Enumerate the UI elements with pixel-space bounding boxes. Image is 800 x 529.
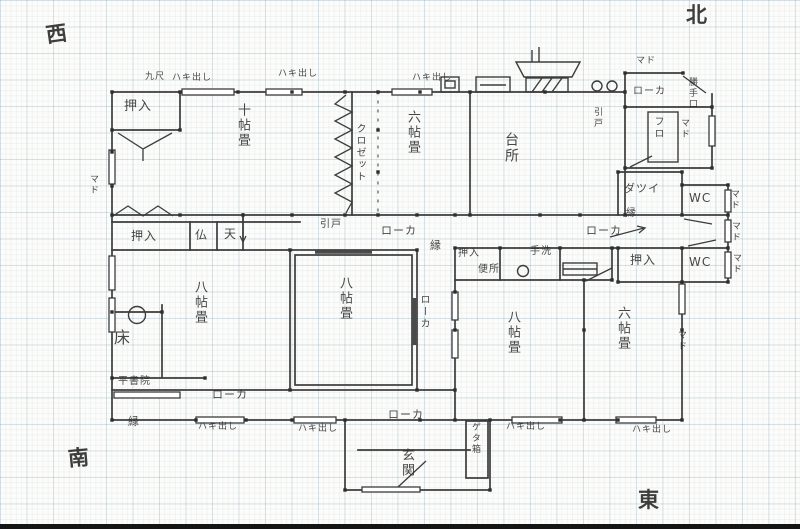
label-hakidashi-s2: ハキ出し <box>298 425 338 434</box>
label-mado-west: マド <box>88 174 97 196</box>
label-hakidashi-s4: ハキ出し <box>632 426 672 435</box>
room-label-eight-mat-south: 八帖畳 <box>506 310 519 355</box>
room-label-closet-strip: クロゼット <box>354 123 364 183</box>
label-mado-north: マド <box>636 57 656 66</box>
room-label-changing: ダツイ <box>624 183 660 194</box>
room-label-wc-upper: WC <box>689 192 711 204</box>
compass-west: 西 <box>45 23 70 47</box>
label-hakidashi-s3: ハキ出し <box>506 423 546 432</box>
label-shoin: 平書院 <box>118 377 151 387</box>
label-mado-se: マド <box>676 330 685 352</box>
burner <box>607 81 617 91</box>
label-roka-south: ローカ <box>212 389 248 400</box>
room-label-six-mat-north: 六帖畳 <box>406 110 419 155</box>
label-mado-bath: マド <box>679 118 688 140</box>
room-label-eight-mat-middle: 八帖畳 <box>338 276 351 321</box>
room-label-genkan: 玄関 <box>400 448 413 478</box>
scan-edge-bar <box>0 524 800 529</box>
compass-north: 北 <box>686 5 708 26</box>
label-oshiire-south: 押入 <box>458 249 480 259</box>
label-hakidashi-n1: ハキ出し <box>172 74 212 83</box>
label-butsudan: 仏 <box>195 229 208 241</box>
label-oshiire-nw: 押入 <box>124 100 152 113</box>
label-roka-vertical: ローカ <box>418 294 428 330</box>
label-mado-east3: マド <box>731 253 740 275</box>
label-roka-genkan: ローカ <box>388 409 424 420</box>
label-hakidashi-n3: ハキ出し <box>412 74 452 83</box>
label-en-mid: 縁 <box>430 240 442 251</box>
label-en-south: 縁 <box>128 416 140 427</box>
label-roka-ne: ローカ <box>633 87 666 97</box>
room-label-six-mat-south: 六帖畳 <box>616 306 629 351</box>
label-kyushaku: 九尺 <box>145 73 165 82</box>
label-hikido-mid: 引戸 <box>320 220 342 230</box>
label-oshiire-ne: 押入 <box>630 254 656 266</box>
compass-east: 東 <box>638 490 660 511</box>
compass-south: 南 <box>67 447 91 470</box>
label-hakidashi-s1: ハキ出し <box>198 423 238 432</box>
floorplan-page: 西 北 南 東 十帖畳 クロゼット 六帖畳 台所 八帖畳 八帖畳 八帖畳 六帖畳… <box>0 0 800 529</box>
room-label-eight-mat-west: 八帖畳 <box>193 280 206 325</box>
label-getabako: ゲタ箱 <box>470 422 479 455</box>
label-mado-east1: マド <box>729 189 738 211</box>
toilet-bowl <box>518 266 529 277</box>
fusuma-bands <box>315 252 415 345</box>
room-label-wc-lower: WC <box>689 256 711 268</box>
room-label-ten-mat: 十帖畳 <box>236 103 249 148</box>
label-tenbukuro: 天 <box>224 228 237 240</box>
label-roka-east: ローカ <box>586 225 622 236</box>
range-hood <box>516 62 580 77</box>
label-oshiire-west: 押入 <box>131 230 157 242</box>
label-katteguchi: 勝手口 <box>687 77 696 110</box>
label-mado-east2: マド <box>730 221 739 243</box>
room-label-bath: フロ <box>652 116 662 140</box>
label-en-east: 縁 <box>626 209 637 219</box>
label-roka-mid: ローカ <box>381 225 417 236</box>
label-hakidashi-n2: ハキ出し <box>278 70 318 79</box>
label-toilet: 便所 <box>478 265 500 275</box>
label-tearai: 手洗 <box>530 247 552 257</box>
label-hikido-ne: 引戸 <box>592 107 601 129</box>
label-tokonoma: 床 <box>114 330 131 346</box>
toko-pillar <box>129 307 146 324</box>
burner <box>592 81 602 91</box>
room-label-kitchen: 台所 <box>504 132 518 164</box>
